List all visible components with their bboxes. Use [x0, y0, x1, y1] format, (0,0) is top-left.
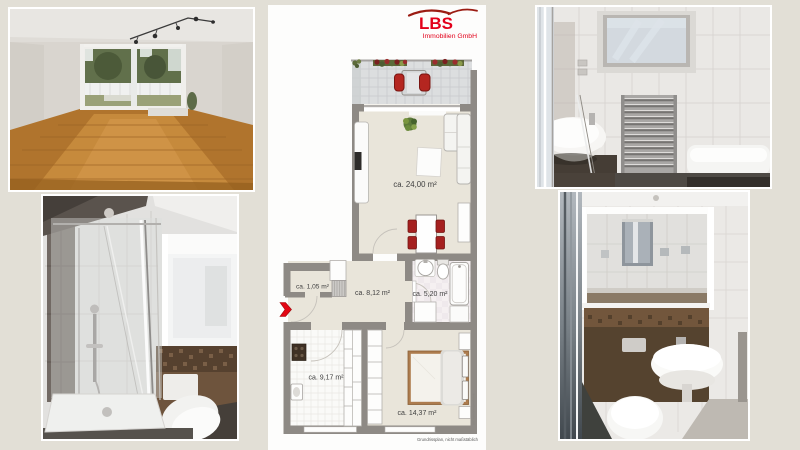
svg-text:LBS: LBS	[419, 14, 453, 33]
svg-text:LBS Immobiliengesellschaft: LBS Immobiliengesellschaft	[472, 393, 476, 425]
svg-text:ca. 14,37 m²: ca. 14,37 m²	[398, 410, 438, 417]
svg-text:ca. 5,20 m²: ca. 5,20 m²	[412, 291, 448, 298]
svg-text:ca. 24,00 m²: ca. 24,00 m²	[393, 180, 437, 189]
svg-text:Grundrissplan, nicht maßstäbli: Grundrissplan, nicht maßstäblich	[417, 437, 479, 442]
svg-text:ca. 9,17 m²: ca. 9,17 m²	[308, 375, 344, 382]
svg-text:Immobilien GmbH: Immobilien GmbH	[423, 33, 477, 40]
svg-text:ca. 1,05 m²: ca. 1,05 m²	[296, 284, 330, 291]
svg-text:ca. 8,12 m²: ca. 8,12 m²	[355, 290, 391, 297]
